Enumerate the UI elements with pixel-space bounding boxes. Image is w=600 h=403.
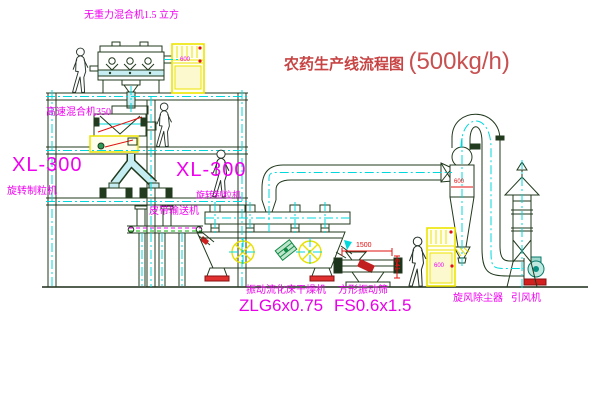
label-granulator-left-name: 旋转制粒机	[7, 187, 57, 197]
title-capacity: (500kg/h)	[408, 48, 509, 75]
control-cabinet-top	[172, 44, 204, 93]
dryer-feet	[205, 268, 334, 281]
cabinet-top-panel-text: 600	[180, 57, 190, 63]
worker-figure-ground	[409, 237, 426, 286]
label-dryer-model: ZLG6x0.75	[239, 297, 323, 314]
dim-screen-length: 1500	[356, 242, 372, 249]
belt-conveyor	[127, 226, 214, 286]
y-chute	[114, 154, 154, 184]
label-high-speed-mixer: 高速混合机350	[46, 108, 111, 118]
control-cabinet-bottom	[427, 228, 455, 286]
fluid-bed-dryer	[197, 205, 352, 281]
label-screen-model: FS0.6x1.5	[334, 297, 412, 314]
dim-cyclone-body: 600	[454, 179, 464, 185]
granulator-right	[140, 183, 172, 198]
dryer-vibration-motor	[275, 240, 297, 261]
zero-gravity-mixer	[90, 42, 176, 108]
cabinet-bottom-panel-text: 600	[434, 263, 444, 269]
label-granulator-right-model: XL-300	[176, 160, 247, 180]
label-dryer-name: 振动流化床干燥机	[246, 286, 326, 296]
label-screen-name: 方形振动筛	[338, 286, 388, 296]
label-cyclone: 旋风除尘器	[453, 294, 503, 304]
dim-screen-height: 541	[393, 259, 400, 271]
label-zero-gravity-mixer: 无重力混合机1.5 立方	[84, 11, 179, 21]
worker-figure-roof	[73, 48, 88, 92]
title-text: 农药生产线流程图	[284, 57, 404, 73]
label-granulator-left-model: XL-300	[12, 155, 83, 175]
label-belt-conveyor: 皮带输送机	[149, 207, 199, 217]
cad-drawing-canvas: 农药生产线流程图 (500kg/h) 无重力混合机1.5 立方 高速混合机350…	[0, 0, 600, 403]
mixer-motor-box	[90, 136, 138, 152]
mixer-hoppers	[106, 58, 154, 70]
drawing-title: 农药生产线流程图 (500kg/h)	[284, 48, 510, 76]
label-granulator-right-name: 旋转制粒机	[196, 191, 241, 200]
granulator-left	[100, 183, 132, 198]
worker-figure-level2	[157, 103, 172, 147]
conveyor-discharge-chute	[199, 233, 214, 245]
label-fan: 引风机	[511, 294, 541, 304]
